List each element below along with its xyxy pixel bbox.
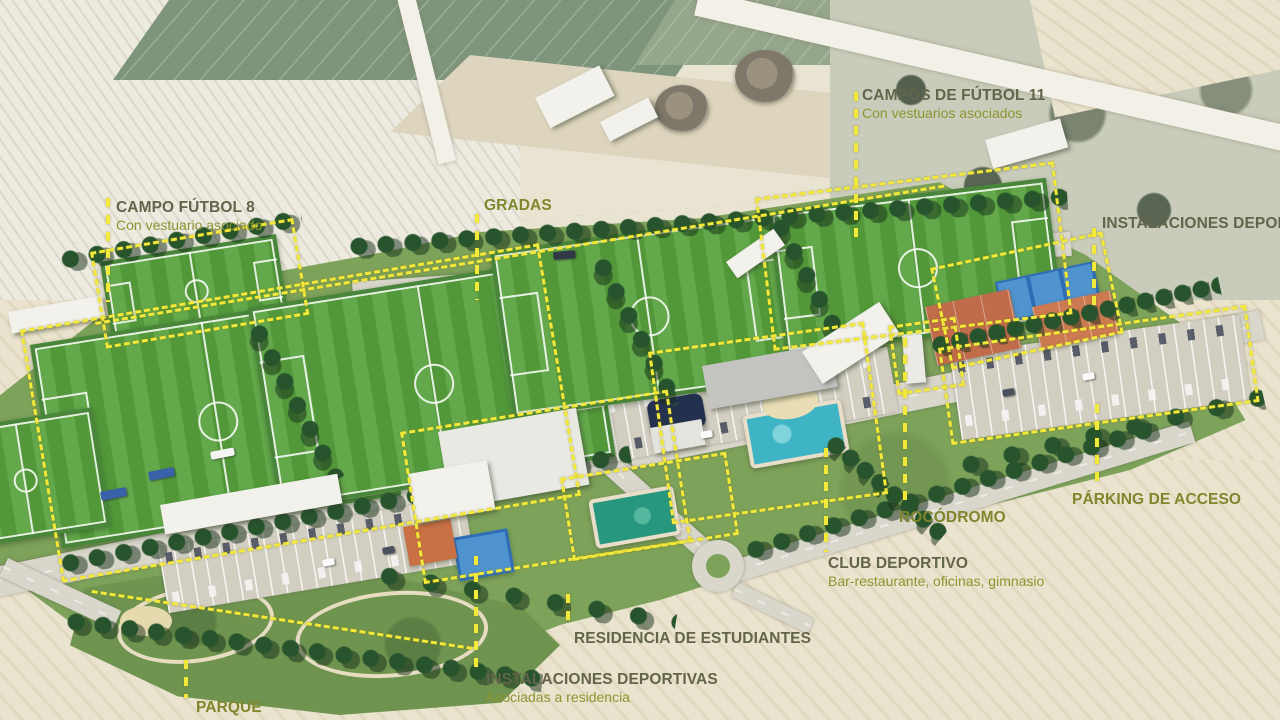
site-plan-rendering: CAMPOS DE FÚTBOL 11 Con vestuarios asoci… xyxy=(0,0,1280,720)
zone-outline-rocodromo xyxy=(888,317,965,396)
label-subtitle: Con vestuario asociado xyxy=(116,217,262,235)
leader-instalaciones-residencia xyxy=(474,556,478,668)
leader-parque xyxy=(184,660,188,698)
leader-campo-futbol-8 xyxy=(106,198,110,302)
label-parque: PARQUE xyxy=(196,698,262,717)
label-title: INSTALACIONES DEPORTIVAS xyxy=(486,670,718,689)
leader-club xyxy=(824,448,828,552)
label-title: RESIDENCIA DE ESTUDIANTES xyxy=(574,629,811,648)
label-instalaciones-deportivas-residencia: INSTALACIONES DEPORTIVAS Asociadas a res… xyxy=(486,670,718,707)
label-subtitle: Asociadas a residencia xyxy=(486,689,718,707)
label-title: ROCÓDROMO xyxy=(899,508,1006,527)
water-tank-2 xyxy=(655,85,709,131)
leader-gradas xyxy=(475,214,479,300)
pitch-centre-circle xyxy=(12,467,39,494)
label-title: GRADAS xyxy=(484,196,552,215)
label-title: INSTALACIONES DEPORTIVAS xyxy=(1102,214,1280,233)
label-subtitle: Bar-restaurante, oficinas, gimnasio xyxy=(828,573,1044,591)
label-campo-futbol-8: CAMPO FÚTBOL 8 Con vestuario asociado xyxy=(116,198,262,235)
leader-residencia xyxy=(566,594,570,628)
leader-rocodromo xyxy=(903,338,907,508)
label-gradas: GRADAS xyxy=(484,196,552,215)
label-parking-de-acceso: PÁRKING DE ACCESO xyxy=(1072,490,1241,509)
label-club-deportivo: CLUB DEPORTIVO Bar-restaurante, oficinas… xyxy=(828,554,1044,591)
label-title: PÁRKING DE ACCESO xyxy=(1072,490,1241,509)
roundabout-island xyxy=(706,554,730,578)
label-title: CAMPO FÚTBOL 8 xyxy=(116,198,262,217)
water-tank xyxy=(735,50,795,102)
leader-campos-futbol-11 xyxy=(854,92,858,244)
label-residencia-de-estudiantes: RESIDENCIA DE ESTUDIANTES xyxy=(574,629,811,648)
label-title: PARQUE xyxy=(196,698,262,717)
label-campos-futbol-11: CAMPOS DE FÚTBOL 11 Con vestuarios asoci… xyxy=(862,86,1045,123)
leader-instalaciones-este xyxy=(1092,228,1096,310)
label-title: CLUB DEPORTIVO xyxy=(828,554,1044,573)
label-instalaciones-deportivas-este: INSTALACIONES DEPORTIVAS xyxy=(1102,214,1280,233)
label-subtitle: Con vestuarios asociados xyxy=(862,105,1045,123)
label-title: CAMPOS DE FÚTBOL 11 xyxy=(862,86,1045,105)
leader-parking xyxy=(1095,404,1099,488)
label-rocodromo: ROCÓDROMO xyxy=(899,508,1006,527)
